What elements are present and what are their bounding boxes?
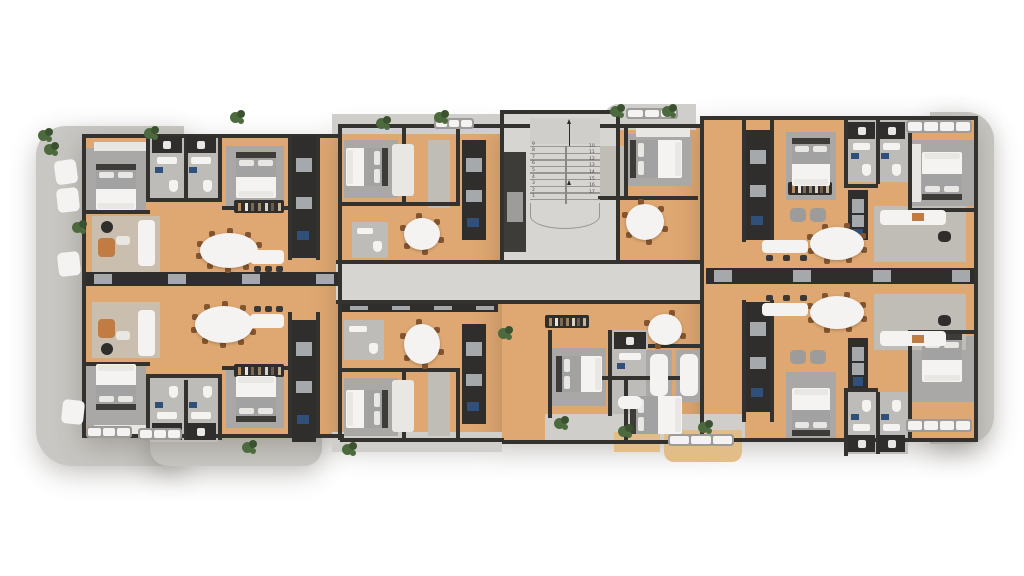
headboard (922, 194, 962, 200)
wall (702, 438, 978, 442)
table-top (404, 324, 440, 364)
stairwell: 9876543211011121314151617 (528, 114, 602, 242)
bed (346, 390, 388, 428)
pillow (925, 186, 940, 192)
hanging-clothes (271, 367, 274, 375)
plant (554, 416, 570, 432)
sink (751, 388, 763, 397)
bath-cell (878, 122, 905, 180)
shower-tray (888, 127, 896, 135)
dining-table-group (804, 290, 870, 335)
kitchen-centerleft-top (462, 140, 486, 240)
kitchen-right-bottom (848, 338, 868, 388)
pillow (564, 376, 570, 389)
cushion (908, 421, 922, 430)
cushion (956, 421, 970, 430)
cabinet-detail (476, 306, 494, 310)
bathtub (618, 396, 642, 409)
hanging-clothes (238, 203, 241, 211)
stair-number: 12 (589, 157, 595, 162)
pillow (374, 169, 380, 183)
bed (792, 138, 830, 186)
oven (466, 158, 482, 172)
round-chair (101, 221, 113, 233)
wall (608, 330, 612, 416)
vanity (189, 402, 197, 408)
builtin-corridor-south (342, 304, 498, 312)
foot-bench (595, 358, 601, 390)
armchair (98, 319, 115, 338)
cabinet-detail (952, 270, 970, 282)
foot-bench (794, 179, 828, 185)
foliage (237, 110, 245, 118)
cushion (168, 430, 180, 438)
round-chair (101, 343, 113, 355)
toilet (203, 180, 212, 192)
vanity (189, 167, 197, 173)
pillow (638, 143, 644, 157)
pillow (564, 359, 570, 372)
cushion (461, 120, 472, 127)
foliage (441, 110, 449, 118)
bed (792, 388, 830, 436)
foliage (80, 228, 86, 234)
coffee-table (116, 331, 130, 340)
cooktop (296, 381, 312, 393)
foliage (249, 440, 257, 448)
elevator-shaft (504, 152, 526, 252)
cushion (924, 122, 938, 131)
hanging-clothes (251, 203, 254, 211)
bed (236, 152, 276, 198)
foot-bench (98, 203, 134, 209)
kitchen-island (250, 306, 284, 336)
bath-cell (848, 122, 875, 180)
foliage (705, 420, 713, 428)
stool (276, 306, 283, 312)
pillow (239, 408, 254, 414)
pillow (638, 161, 644, 175)
stool (254, 306, 261, 312)
vanity (155, 167, 163, 173)
pillow (374, 151, 380, 165)
island-counter (250, 314, 284, 328)
stair-number: 16 (589, 183, 595, 188)
table-top (648, 314, 682, 345)
cabinet-detail (392, 306, 410, 310)
shower-tray (858, 127, 866, 135)
bed (630, 140, 682, 178)
pillow (99, 396, 114, 402)
foliage (52, 150, 58, 156)
elevator-door (507, 192, 523, 222)
dining-table-round-group (642, 308, 688, 351)
stair-number: 9 (532, 142, 535, 147)
table-top (195, 306, 253, 343)
sink (883, 424, 900, 431)
foot-bench (675, 398, 681, 432)
bath-cell (186, 136, 216, 196)
headboard (236, 416, 276, 422)
cushion (449, 120, 460, 127)
toilet (862, 164, 871, 176)
foliage (383, 116, 391, 124)
oven (852, 199, 864, 213)
wall (316, 134, 320, 260)
shower-tray (888, 440, 896, 448)
bed (236, 376, 276, 422)
plant (230, 110, 246, 126)
foliage (349, 442, 357, 450)
wall (624, 126, 628, 200)
throw-pillow (912, 335, 924, 343)
foliage (79, 220, 87, 228)
oven (852, 347, 864, 361)
hanging-clothes (577, 318, 580, 326)
stairwell-curved-wall (530, 203, 600, 229)
pillow (944, 342, 959, 348)
foliage (706, 428, 712, 434)
wardrobe (912, 144, 921, 202)
shower-tray (197, 141, 205, 149)
sink (357, 228, 373, 234)
hanging-clothes (265, 367, 268, 375)
bath-mini (346, 322, 382, 358)
foliage (669, 104, 677, 112)
wall (340, 438, 504, 442)
wall (218, 374, 222, 440)
hanging-clothes (258, 203, 261, 211)
hanging-clothes (572, 318, 575, 326)
foot-bench (238, 377, 274, 383)
wall (338, 124, 342, 440)
floor-plan-rendering: 9876543211011121314151617 (0, 0, 1024, 576)
cabinet-detail (873, 270, 891, 282)
sink (157, 412, 177, 419)
plant (376, 116, 392, 132)
stair-number: 2 (532, 188, 535, 193)
table-top (810, 227, 864, 260)
stool (800, 255, 807, 261)
wall (146, 374, 222, 378)
cushion (713, 436, 732, 444)
pouf (938, 231, 951, 242)
island-counter (762, 303, 808, 316)
cushion (691, 436, 710, 444)
terrace-bench (86, 426, 132, 438)
plant (698, 420, 714, 436)
headboard (792, 430, 830, 436)
cushion (117, 428, 130, 436)
sink (467, 218, 479, 227)
pillow (374, 411, 380, 425)
cushion (908, 122, 922, 131)
foot-bench (98, 365, 134, 371)
plant (72, 220, 88, 236)
foliage (350, 450, 356, 456)
pillow (118, 396, 133, 402)
wall (82, 134, 86, 438)
dining-table-group (398, 212, 446, 256)
vanity (155, 402, 163, 408)
cushion (940, 421, 954, 430)
foot-bench (347, 150, 353, 184)
throw-pillow (912, 213, 924, 221)
foot-bench (238, 191, 274, 197)
dining-table-group (398, 318, 446, 370)
cushion (140, 430, 152, 438)
pillow (239, 160, 254, 166)
vanity (617, 363, 625, 369)
pillow (795, 422, 809, 428)
sink (467, 402, 479, 411)
table-top (404, 218, 440, 250)
foliage (506, 334, 512, 340)
plant (342, 442, 358, 458)
foot-bench (924, 375, 960, 381)
foliage (442, 118, 448, 124)
pouf (938, 315, 951, 326)
pillow (258, 160, 273, 166)
cooktop (750, 185, 766, 197)
sofa (138, 310, 155, 356)
cushion (940, 122, 954, 131)
headboard (382, 148, 388, 186)
cushion (956, 122, 970, 131)
hanging-clothes (560, 318, 563, 326)
pillow (944, 186, 959, 192)
toilet (892, 164, 901, 176)
stool (800, 295, 807, 301)
cabinet-detail (316, 274, 334, 284)
island-counter (762, 240, 808, 253)
plant (434, 110, 450, 126)
stair-number: 15 (589, 177, 595, 182)
hanging-clothes (238, 367, 241, 375)
bed (346, 148, 388, 186)
stair-number: 8 (532, 148, 535, 153)
stair-number: 3 (532, 181, 535, 186)
cabinet-detail (242, 274, 260, 284)
foliage (626, 432, 632, 438)
cushion (628, 110, 643, 117)
foliage (45, 128, 53, 136)
dressing-island (392, 380, 414, 432)
window-bench (906, 120, 972, 133)
sink (297, 415, 309, 424)
foot-bench (794, 389, 828, 395)
cushion (670, 436, 689, 444)
sofa (138, 220, 155, 266)
bed (96, 364, 136, 410)
kitchen-island (250, 242, 284, 272)
stair-number: 13 (589, 163, 595, 168)
toilet (169, 386, 178, 398)
shower-tray (858, 440, 866, 448)
armchair (98, 238, 115, 257)
plant (242, 440, 258, 456)
cooktop (852, 363, 864, 375)
shower-tray (163, 141, 171, 149)
wall (146, 198, 222, 202)
hanging-clothes (258, 367, 261, 375)
hanging-clothes (271, 203, 274, 211)
kitchen-island (762, 295, 808, 324)
bed (922, 152, 962, 200)
foot-bench (924, 153, 960, 159)
sitting-centerright-rug (600, 146, 626, 200)
island-counter (250, 250, 284, 264)
builtin-spine-right (706, 268, 974, 284)
pouf (790, 208, 806, 222)
stair-number: 14 (589, 170, 595, 175)
wall (844, 184, 878, 188)
toilet (203, 386, 212, 398)
direction-line (569, 124, 570, 146)
sink (619, 353, 641, 360)
lounge-chair (53, 159, 78, 186)
oven (750, 150, 766, 164)
foot-bench (347, 392, 353, 426)
cooktop (466, 190, 482, 202)
foot-bench (675, 142, 681, 176)
toilet (862, 400, 871, 412)
stool (254, 266, 261, 272)
sink (853, 143, 870, 150)
headboard (96, 404, 136, 410)
plant (144, 126, 160, 142)
bath-cell (848, 394, 875, 452)
bath-cell (186, 380, 216, 440)
cushion (154, 430, 166, 438)
stool (265, 266, 272, 272)
cabinet-detail (434, 306, 452, 310)
bed (96, 164, 136, 210)
kitchen-centerleft-bottom (462, 324, 486, 424)
foliage (238, 118, 244, 124)
cushion (924, 421, 938, 430)
foliage (618, 112, 624, 118)
wall (82, 210, 150, 214)
stair-number: 10 (589, 144, 595, 149)
table-top (626, 204, 664, 240)
plant (44, 142, 60, 158)
stair-number: 17 (589, 190, 595, 195)
cooktop (750, 357, 766, 369)
stair-number: 5 (532, 168, 535, 173)
cooktop (466, 374, 482, 386)
wall (316, 312, 320, 438)
wardrobe (94, 142, 146, 151)
stair-landing (530, 118, 600, 144)
wall (770, 120, 774, 242)
kitchen-island (762, 232, 808, 261)
terrace-bench (138, 428, 182, 440)
sink (751, 216, 763, 225)
pillow (258, 408, 273, 414)
foliage (384, 124, 390, 130)
foliage (562, 424, 568, 430)
plant (498, 326, 514, 342)
foliage (670, 112, 676, 118)
plant (662, 104, 678, 120)
lounge-chair (56, 187, 80, 213)
kitchen-centerright-top (746, 130, 770, 240)
recliner (650, 354, 668, 396)
cushion (645, 110, 660, 117)
sink (297, 231, 309, 240)
wall (548, 330, 552, 418)
hanging-clothes (265, 203, 268, 211)
up-arrow (567, 180, 571, 185)
wall (218, 134, 222, 202)
hanging-clothes (278, 203, 281, 211)
hanging-clothes (251, 367, 254, 375)
sink (853, 424, 870, 431)
sink (883, 143, 900, 150)
wall (340, 124, 504, 128)
wall (700, 116, 704, 442)
plant (618, 424, 634, 440)
coffee-table (116, 236, 130, 245)
table-top (810, 296, 864, 329)
stair-number: 7 (532, 155, 535, 160)
window-bench (906, 419, 972, 432)
sink (853, 377, 863, 386)
bath-mini (354, 224, 386, 256)
hanging-clothes (245, 203, 248, 211)
dressing-island (392, 144, 414, 196)
foliage (617, 104, 625, 112)
hanging-clothes (245, 367, 248, 375)
recliner (680, 354, 698, 396)
cabinet-detail (94, 274, 112, 284)
cooktop (296, 197, 312, 209)
bed (556, 356, 602, 392)
toilet (169, 180, 178, 192)
pouf (790, 350, 806, 364)
wall (456, 370, 460, 440)
vanity (881, 414, 889, 420)
foliage (561, 416, 569, 424)
foliage (51, 142, 59, 150)
hanging-clothes (549, 318, 552, 326)
kitchen-bottomleft (292, 320, 316, 442)
hanging-clothes (555, 318, 558, 326)
sink (191, 412, 211, 419)
foliage (152, 134, 158, 140)
cabinet-detail (793, 270, 811, 282)
pillow (795, 146, 809, 152)
hanging-clothes (278, 367, 281, 375)
toilet (892, 400, 901, 412)
wall (844, 388, 878, 392)
sink (349, 326, 367, 332)
closet-rack-bottomcenter (545, 315, 589, 328)
dining-table-group (620, 198, 670, 246)
dining-table-group (804, 221, 870, 266)
vanity (881, 153, 889, 159)
shower-tray (626, 337, 634, 345)
pillow (99, 172, 114, 178)
wall (340, 202, 460, 206)
corridor-wall-top (336, 260, 704, 264)
cabinet-detail (714, 270, 732, 282)
cushion (88, 428, 101, 436)
up-arrow (567, 119, 571, 124)
shower-tray (197, 428, 205, 436)
stair-number: 4 (532, 175, 535, 180)
